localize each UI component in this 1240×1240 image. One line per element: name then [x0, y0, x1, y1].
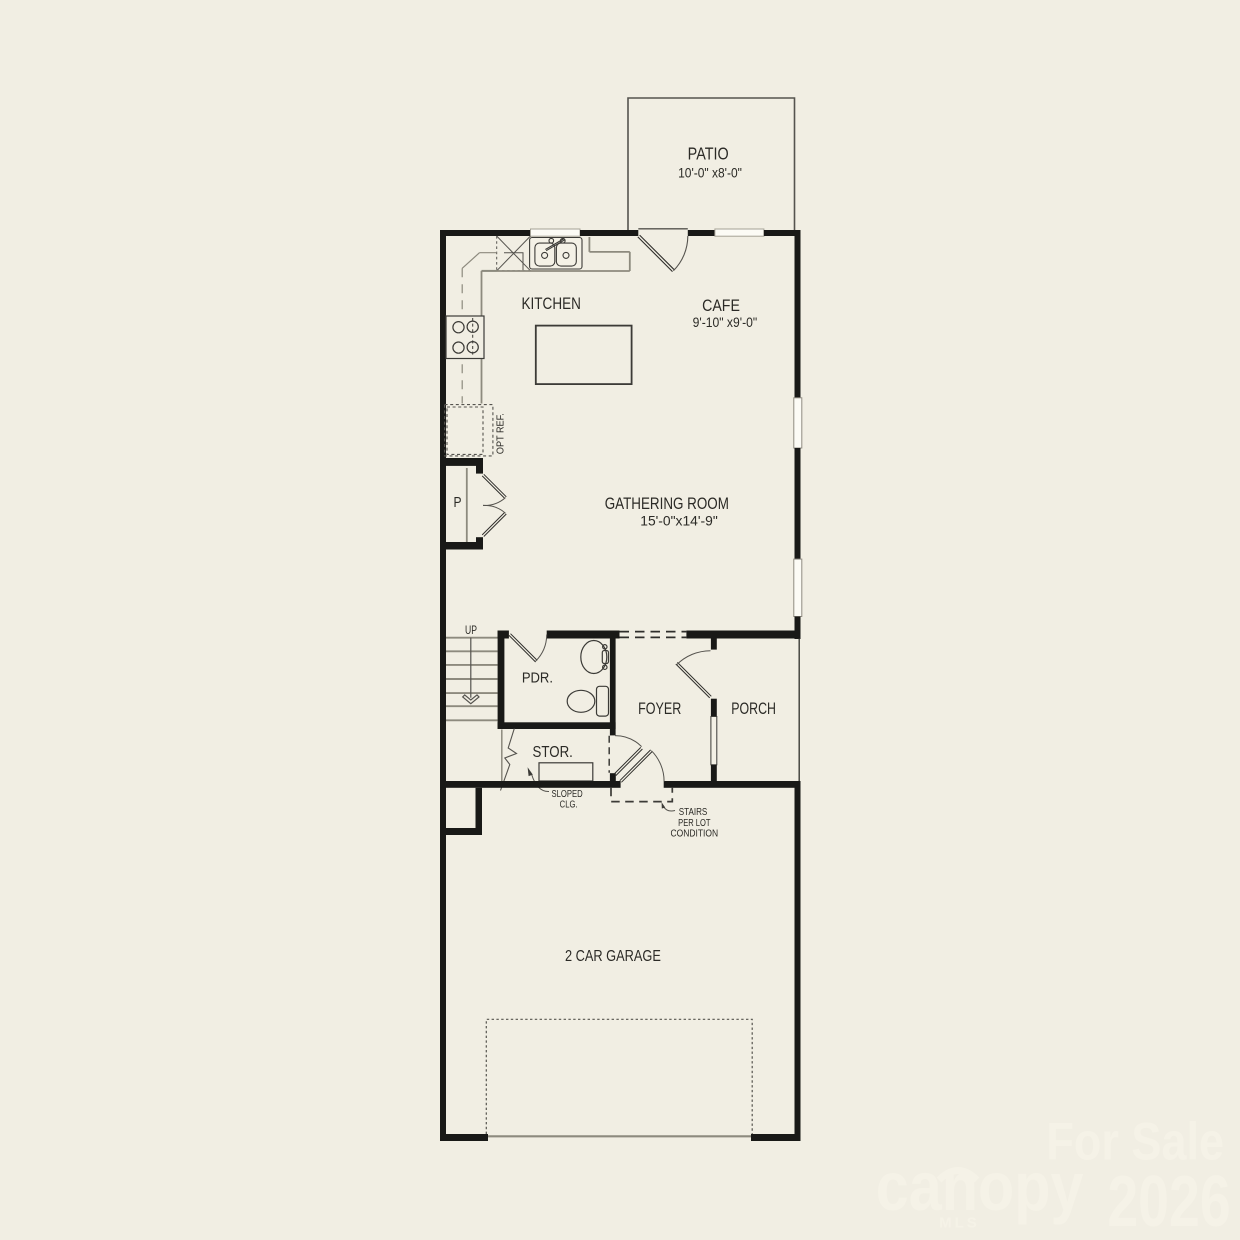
svg-text:2 CAR GARAGE: 2 CAR GARAGE	[565, 948, 661, 966]
svg-text:CONDITION: CONDITION	[670, 828, 718, 840]
svg-text:MLS: MLS	[939, 1214, 980, 1231]
svg-text:PATIO: PATIO	[688, 144, 729, 164]
svg-text:UP: UP	[465, 625, 477, 637]
svg-text:CLG.: CLG.	[560, 798, 578, 809]
svg-text:GATHERING ROOM: GATHERING ROOM	[605, 495, 729, 514]
svg-text:STOR.: STOR.	[533, 744, 573, 761]
svg-text:SLOPED: SLOPED	[552, 788, 583, 799]
svg-text:PORCH: PORCH	[731, 700, 776, 718]
svg-text:FOYER: FOYER	[638, 700, 681, 718]
svg-text:KITCHEN: KITCHEN	[522, 295, 581, 314]
svg-text:P: P	[453, 494, 461, 511]
svg-text:9'-10" x9'-0": 9'-10" x9'-0"	[693, 314, 758, 330]
svg-text:15'-0"x14'-9": 15'-0"x14'-9"	[640, 512, 718, 528]
svg-text:STAIRS: STAIRS	[679, 806, 708, 817]
svg-text:PDR.: PDR.	[522, 669, 553, 686]
svg-text:CAFE: CAFE	[702, 297, 740, 315]
svg-text:2026: 2026	[1107, 1161, 1230, 1240]
svg-text:PER LOT: PER LOT	[678, 817, 711, 828]
svg-text:10'-0" x8'-0": 10'-0" x8'-0"	[678, 165, 742, 181]
svg-text:OPT REF.: OPT REF.	[495, 413, 507, 454]
